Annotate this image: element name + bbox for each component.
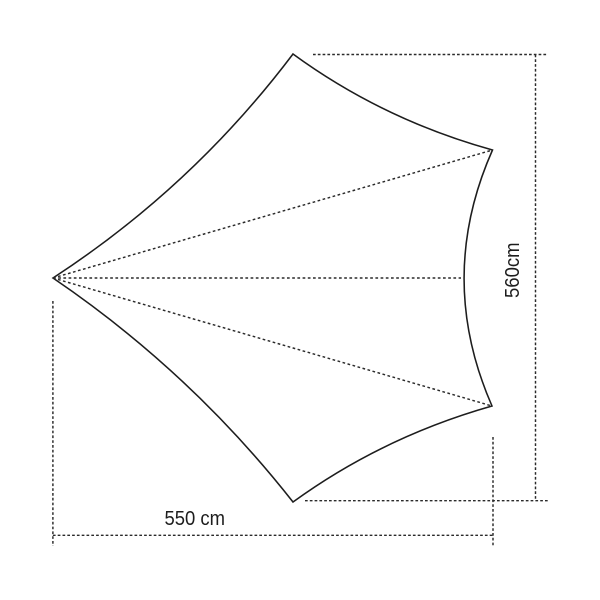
svg-text:550 cm: 550 cm: [165, 508, 226, 530]
svg-text:560cm: 560cm: [502, 243, 524, 299]
